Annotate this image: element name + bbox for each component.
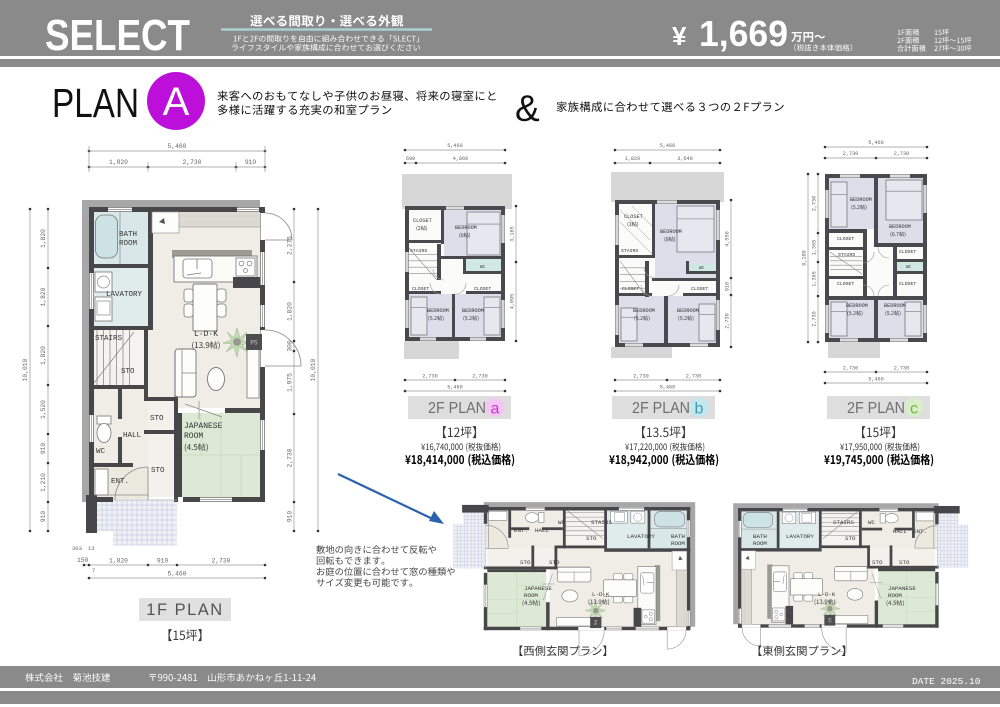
svg-text:2,730: 2,730: [725, 313, 731, 329]
svg-text:910: 910: [245, 159, 257, 166]
svg-text:4,550: 4,550: [725, 231, 731, 247]
svg-text:STAIRS: STAIRS: [591, 519, 612, 526]
svg-text:4,860: 4,860: [453, 156, 469, 162]
svg-text:300: 300: [287, 340, 294, 352]
svg-text:2F PLAN: 2F PLAN: [847, 400, 905, 417]
svg-text:600: 600: [406, 156, 415, 162]
svg-text:CLOSET: CLOSET: [624, 214, 643, 220]
svg-text:BEDROOM: BEDROOM: [427, 308, 449, 314]
svg-text:2,730: 2,730: [843, 151, 859, 157]
svg-text:LAVATORY: LAVATORY: [786, 533, 814, 540]
svg-text:HALL: HALL: [535, 527, 549, 534]
svg-text:303: 303: [72, 545, 82, 552]
svg-text:ROOM: ROOM: [524, 592, 538, 599]
svg-text:910: 910: [287, 511, 294, 523]
svg-text:5,460: 5,460: [168, 571, 187, 578]
svg-text:BEDROOM: BEDROOM: [846, 303, 868, 309]
svg-text:ROOM: ROOM: [671, 540, 685, 547]
svg-text:ENT.: ENT.: [913, 528, 927, 535]
svg-text:2,730: 2,730: [894, 366, 910, 372]
svg-text:CLOSET: CLOSET: [899, 281, 916, 287]
svg-text:2,730: 2,730: [812, 311, 818, 327]
svg-text:CLOSET: CLOSET: [899, 249, 916, 255]
svg-text:WC: WC: [96, 448, 106, 456]
svg-text:STAIRS: STAIRS: [410, 248, 427, 254]
svg-text:2,730: 2,730: [894, 151, 910, 157]
svg-text:LAVATORY: LAVATORY: [106, 291, 143, 299]
svg-text:HALL: HALL: [123, 432, 142, 440]
svg-text:5,460: 5,460: [447, 143, 463, 149]
svg-text:L·D·K: L·D·K: [194, 330, 218, 339]
svg-text:5,460: 5,460: [868, 140, 884, 146]
svg-text:1F PLAN: 1F PLAN: [146, 601, 223, 619]
svg-text:3,640: 3,640: [677, 156, 693, 162]
svg-text:CLOSET: CLOSET: [412, 286, 429, 292]
svg-text:DATE 2025.10: DATE 2025.10: [912, 676, 981, 687]
svg-text:ENT.: ENT.: [514, 527, 528, 534]
svg-text:10,010: 10,010: [22, 358, 29, 381]
svg-text:1,210: 1,210: [40, 473, 47, 492]
svg-text:CLOSET: CLOSET: [622, 286, 639, 292]
svg-text:2,275: 2,275: [287, 236, 294, 255]
svg-text:STO: STO: [872, 559, 883, 566]
svg-text:CLOSET: CLOSET: [837, 281, 854, 287]
svg-text:910: 910: [40, 443, 47, 455]
svg-text:STAIRS: STAIRS: [95, 335, 123, 343]
svg-text:1,820: 1,820: [109, 558, 128, 565]
svg-text:910: 910: [725, 282, 731, 291]
svg-text:BATH: BATH: [671, 533, 685, 540]
svg-text:2F PLAN: 2F PLAN: [632, 400, 690, 417]
svg-text:WC: WC: [558, 519, 565, 526]
svg-text:CLOSET: CLOSET: [691, 286, 708, 292]
svg-text:2,730: 2,730: [422, 374, 438, 380]
svg-text:BEDROOM: BEDROOM: [462, 308, 484, 314]
svg-text:BATH: BATH: [119, 231, 137, 239]
svg-text:WC: WC: [906, 266, 912, 270]
svg-text:¥: ¥: [672, 21, 687, 51]
svg-text:JAPANESE: JAPANESE: [524, 585, 552, 592]
svg-text:2,730: 2,730: [472, 374, 488, 380]
svg-text:910: 910: [157, 558, 169, 565]
svg-text:1,820: 1,820: [287, 302, 294, 321]
svg-text:ROOM: ROOM: [184, 432, 203, 441]
svg-text:a: a: [491, 401, 500, 418]
svg-text:SELECT: SELECT: [45, 11, 190, 60]
svg-text:ROOM: ROOM: [888, 592, 902, 599]
svg-text:ROOM: ROOM: [119, 240, 138, 248]
svg-text:2,730: 2,730: [183, 159, 202, 166]
svg-text:BEDROOM: BEDROOM: [889, 224, 911, 230]
svg-text:&: &: [515, 88, 540, 129]
svg-text:1,669: 1,669: [699, 13, 788, 54]
svg-text:5,460: 5,460: [660, 385, 676, 391]
svg-text:BATH: BATH: [753, 533, 767, 540]
svg-text:1,820: 1,820: [40, 287, 47, 306]
svg-text:STO: STO: [520, 559, 531, 566]
svg-text:1,820: 1,820: [40, 229, 47, 248]
svg-text:STAIRS: STAIRS: [621, 248, 638, 254]
svg-text:BEDROOM: BEDROOM: [884, 303, 906, 309]
svg-text:BEDROOM: BEDROOM: [455, 225, 477, 231]
svg-text:STO: STO: [151, 467, 165, 475]
svg-text:c: c: [910, 401, 918, 418]
svg-text:PS: PS: [830, 618, 834, 623]
svg-text:WC: WC: [868, 519, 875, 526]
svg-text:STO: STO: [549, 559, 560, 566]
svg-text:1,365: 1,365: [812, 271, 818, 287]
svg-text:2,730: 2,730: [287, 448, 294, 467]
svg-text:STO: STO: [899, 559, 910, 566]
svg-text:2,730: 2,730: [212, 558, 231, 565]
svg-text:7: 7: [92, 567, 95, 574]
svg-text:STO: STO: [845, 535, 856, 542]
svg-text:b: b: [695, 401, 704, 418]
svg-text:LAVATORY: LAVATORY: [627, 533, 655, 540]
svg-text:5,460: 5,460: [660, 143, 676, 149]
svg-text:1,820: 1,820: [109, 159, 128, 166]
svg-text:BEDROOM: BEDROOM: [677, 308, 699, 314]
svg-text:3,185: 3,185: [510, 226, 516, 242]
svg-text:CLOSET: CLOSET: [413, 218, 432, 224]
svg-text:5,460: 5,460: [168, 143, 187, 150]
svg-text:1,365: 1,365: [812, 240, 818, 256]
svg-text:13: 13: [88, 545, 95, 552]
svg-text:STO: STO: [150, 415, 164, 423]
svg-text:2,730: 2,730: [812, 196, 818, 212]
svg-text:2,730: 2,730: [843, 366, 859, 372]
svg-text:STO: STO: [121, 368, 135, 376]
svg-text:L·D·K: L·D·K: [592, 591, 610, 598]
svg-text:BEDROOM: BEDROOM: [660, 229, 682, 235]
svg-text:1,520: 1,520: [40, 400, 47, 419]
svg-text:STAIRS: STAIRS: [838, 252, 855, 258]
svg-text:WC: WC: [480, 266, 486, 270]
svg-text:4,095: 4,095: [510, 294, 516, 310]
svg-text:PS: PS: [592, 620, 596, 626]
svg-text:10,010: 10,010: [310, 358, 317, 381]
svg-text:5,460: 5,460: [447, 385, 463, 391]
svg-text:JAPANESE: JAPANESE: [888, 585, 916, 592]
svg-text:PS: PS: [250, 340, 258, 347]
svg-text:150: 150: [77, 557, 89, 564]
svg-text:ROOM: ROOM: [753, 540, 767, 547]
svg-text:BEDROOM: BEDROOM: [633, 308, 655, 314]
svg-text:STO: STO: [586, 535, 597, 542]
svg-text:BEDROOM: BEDROOM: [850, 197, 872, 203]
svg-text:1,820: 1,820: [40, 346, 47, 365]
svg-text:STAIRS: STAIRS: [833, 519, 854, 526]
svg-text:ENT.: ENT.: [111, 478, 129, 486]
svg-text:A: A: [163, 80, 190, 124]
svg-text:L·D·K: L·D·K: [818, 591, 836, 598]
svg-text:1,975: 1,975: [287, 373, 294, 392]
svg-text:CLOSET: CLOSET: [837, 236, 854, 242]
svg-text:CLOSET: CLOSET: [474, 286, 491, 292]
svg-text:PLAN: PLAN: [52, 80, 139, 126]
svg-text:1,820: 1,820: [625, 156, 641, 162]
svg-text:910: 910: [40, 511, 47, 523]
svg-text:HALL: HALL: [893, 528, 907, 535]
svg-text:2F PLAN: 2F PLAN: [428, 400, 486, 417]
svg-text:5,460: 5,460: [868, 377, 884, 383]
svg-text:2,730: 2,730: [633, 374, 649, 380]
svg-text:2,730: 2,730: [686, 374, 702, 380]
svg-text:WC: WC: [699, 267, 705, 271]
svg-text:8,190: 8,190: [802, 250, 808, 266]
svg-text:JAPANESE: JAPANESE: [184, 422, 223, 431]
